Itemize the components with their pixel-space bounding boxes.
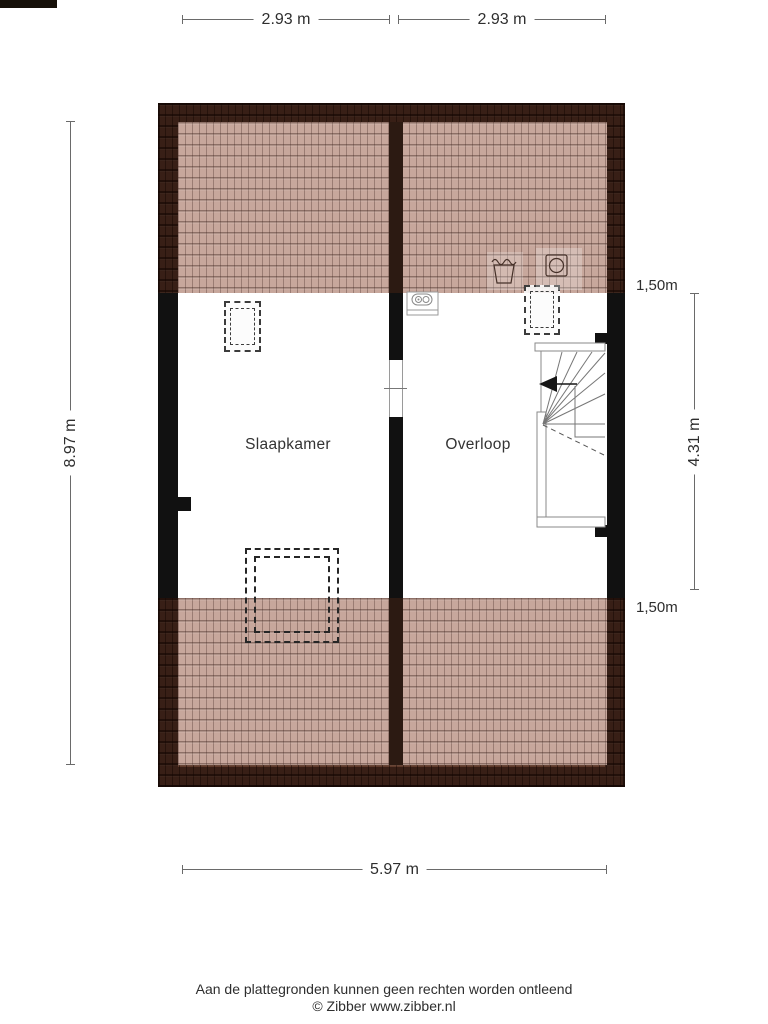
floorplan-canvas: Slaapkamer Overloop [0, 0, 768, 1024]
dimension-left-total-value: 8.97 m [62, 411, 80, 476]
wall-center-lower [389, 417, 403, 598]
dimension-top-right: 2.93 m [398, 15, 606, 25]
wall-stub-stair-bottom [595, 525, 607, 537]
door-opening [389, 360, 403, 417]
room-label-overloop: Overloop [408, 436, 548, 454]
dimension-bottom-total-value: 5.97 m [362, 861, 427, 879]
skylight-dashed-outline-inner [230, 308, 255, 345]
wall-center-upper [389, 293, 403, 360]
footer: Aan de plattegronden kunnen geen rechten… [0, 981, 768, 1015]
wall-center-roof-top [389, 122, 403, 293]
skylight-dashed-outline-inner [530, 291, 554, 328]
wall-right [607, 293, 625, 598]
footer-credit: © Zibber www.zibber.nl [0, 998, 768, 1015]
wall-center-roof-bottom [389, 598, 403, 765]
headroom-label-bottom: 1,50m [636, 599, 678, 616]
dormer-dashed-outline-inner [254, 556, 330, 633]
dimension-left-total: 8.97 m [66, 121, 76, 765]
wall-stub-overloop [0, 0, 57, 8]
dimension-right-middle-value: 4.31 m [686, 409, 704, 474]
footer-disclaimer: Aan de plattegronden kunnen geen rechten… [0, 981, 768, 998]
dimension-bottom-total: 5.97 m [182, 865, 607, 875]
room-label-slaapkamer: Slaapkamer [218, 436, 358, 454]
dimension-top-right-value: 2.93 m [470, 11, 535, 29]
dimension-top-left-value: 2.93 m [254, 11, 319, 29]
dimension-right-middle: 4.31 m [690, 293, 700, 590]
wall-stub-left [178, 497, 191, 511]
wall-left [158, 293, 178, 598]
headroom-label-top: 1,50m [636, 277, 678, 294]
wall-stub-stair-top [595, 333, 607, 344]
dimension-top-left: 2.93 m [182, 15, 390, 25]
